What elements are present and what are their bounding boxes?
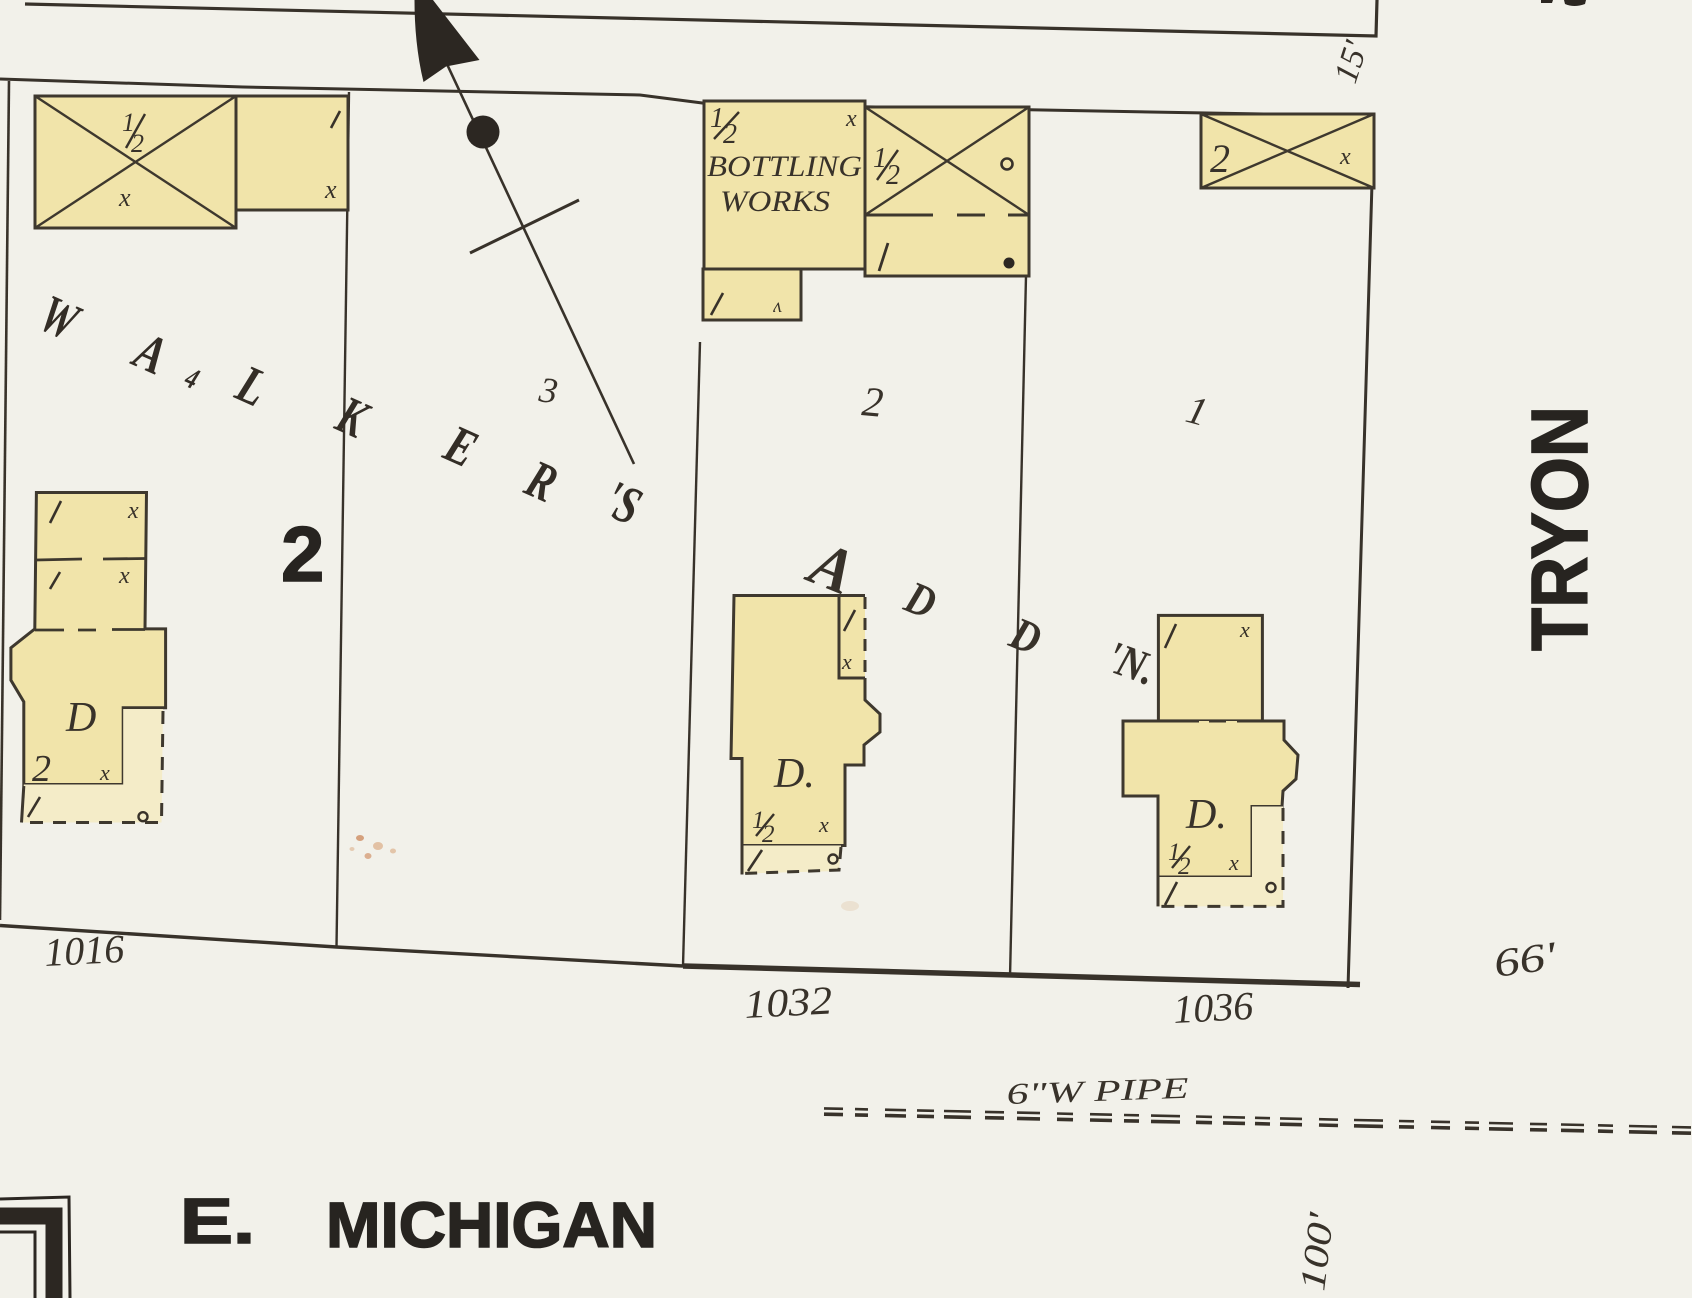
svg-text:D.: D. bbox=[773, 751, 815, 797]
svg-text:E.: E. bbox=[180, 1185, 255, 1257]
svg-text:1: 1 bbox=[710, 103, 724, 134]
svg-text:1016: 1016 bbox=[43, 926, 125, 975]
svg-text:2: 2 bbox=[32, 748, 51, 790]
svg-text:WORKS: WORKS bbox=[720, 185, 830, 218]
svg-text:x: x bbox=[1228, 850, 1239, 875]
svg-text:TRYON: TRYON bbox=[1515, 406, 1604, 651]
svg-text:x: x bbox=[1239, 617, 1250, 642]
svg-text:x: x bbox=[818, 812, 829, 837]
svg-text:x: x bbox=[118, 563, 130, 589]
svg-text:6"W PIPE: 6"W PIPE bbox=[1006, 1072, 1189, 1111]
svg-text:x: x bbox=[845, 106, 857, 132]
svg-text:MICHIGAN: MICHIGAN bbox=[326, 1189, 657, 1261]
svg-text:x: x bbox=[99, 760, 110, 785]
svg-text:66': 66' bbox=[1491, 932, 1560, 985]
svg-text:2: 2 bbox=[723, 119, 737, 150]
svg-text:x: x bbox=[118, 183, 131, 212]
svg-text:1032: 1032 bbox=[743, 977, 833, 1027]
svg-text:x: x bbox=[1339, 144, 1351, 170]
svg-text:2: 2 bbox=[1210, 136, 1230, 181]
svg-text:x: x bbox=[841, 649, 852, 674]
svg-text:2: 2 bbox=[762, 821, 775, 848]
svg-text:BOTTLING: BOTTLING bbox=[707, 150, 862, 183]
svg-text:2: 2 bbox=[1178, 853, 1191, 880]
svg-text:x: x bbox=[127, 498, 139, 524]
svg-text:2: 2 bbox=[886, 160, 900, 191]
svg-text:1036: 1036 bbox=[1172, 983, 1254, 1032]
svg-text:1: 1 bbox=[873, 143, 887, 174]
svg-text:2: 2 bbox=[860, 379, 885, 427]
svg-text:D.: D. bbox=[1185, 792, 1227, 838]
svg-text:2: 2 bbox=[131, 129, 144, 158]
svg-text:ʌ: ʌ bbox=[773, 295, 782, 317]
svg-text:2: 2 bbox=[281, 510, 324, 598]
svg-text:D: D bbox=[65, 695, 96, 741]
svg-text:x: x bbox=[324, 175, 337, 204]
